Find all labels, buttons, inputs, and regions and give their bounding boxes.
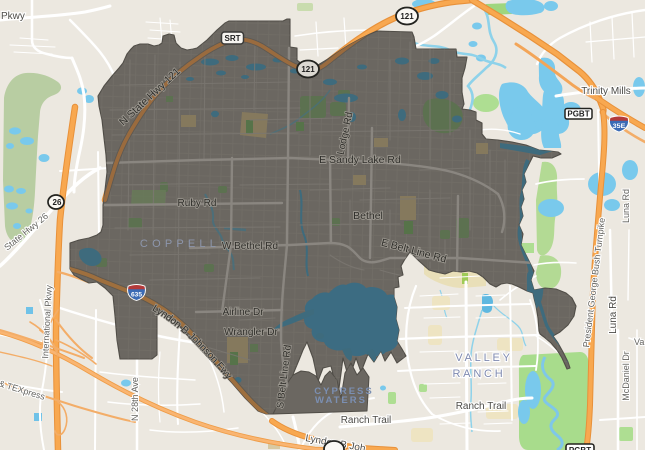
svg-text:Wrangler Dr: Wrangler Dr [224, 327, 278, 338]
svg-text:Bethel: Bethel [353, 210, 383, 222]
svg-text:PGBT: PGBT [569, 446, 591, 450]
svg-text:E Sandy Lake Rd: E Sandy Lake Rd [319, 154, 401, 166]
svg-text:Trinity Mills: Trinity Mills [581, 86, 631, 97]
svg-text:COPPELL: COPPELL [140, 238, 220, 250]
svg-text:26: 26 [53, 198, 62, 207]
svg-text:Pkwy: Pkwy [1, 11, 25, 22]
svg-text:Luna Rd: Luna Rd [608, 296, 619, 334]
svg-text:Ranch Trail: Ranch Trail [341, 415, 392, 426]
svg-text:Airline Dr: Airline Dr [222, 307, 264, 318]
svg-text:WATERS: WATERS [315, 395, 367, 406]
svg-text:N 28th Ave: N 28th Ave [130, 377, 140, 421]
svg-text:121: 121 [400, 12, 414, 21]
svg-text:VALLEY: VALLEY [455, 352, 513, 364]
svg-text:PGBT: PGBT [567, 110, 589, 119]
svg-text:Luna Rd: Luna Rd [621, 189, 631, 223]
svg-text:Ranch Trail: Ranch Trail [456, 401, 507, 412]
svg-text:McDaniel Dr: McDaniel Dr [621, 351, 631, 401]
svg-text:SRT: SRT [225, 34, 241, 43]
svg-text:Va: Va [634, 337, 644, 347]
svg-text:35E: 35E [613, 123, 626, 129]
svg-text:121: 121 [301, 65, 315, 74]
svg-text:Ruby Rd: Ruby Rd [178, 198, 217, 209]
svg-text:W Bethel Rd: W Bethel Rd [222, 241, 278, 252]
svg-text:635: 635 [131, 292, 143, 299]
svg-text:RANCH: RANCH [452, 368, 505, 380]
